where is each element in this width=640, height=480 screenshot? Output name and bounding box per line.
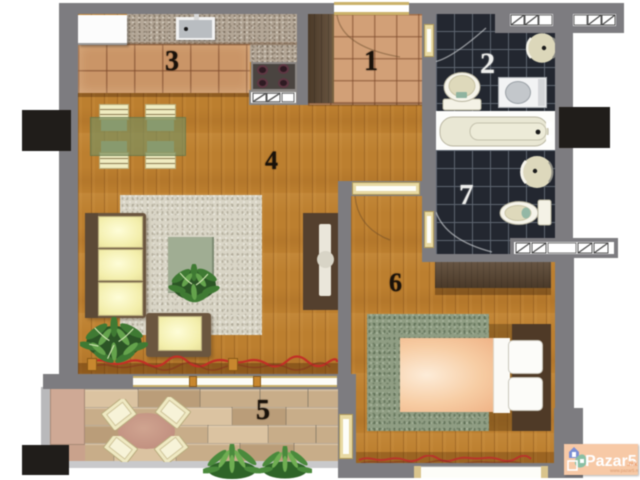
svg-text:www.pazar5.mk: www.pazar5.mk — [610, 468, 638, 473]
